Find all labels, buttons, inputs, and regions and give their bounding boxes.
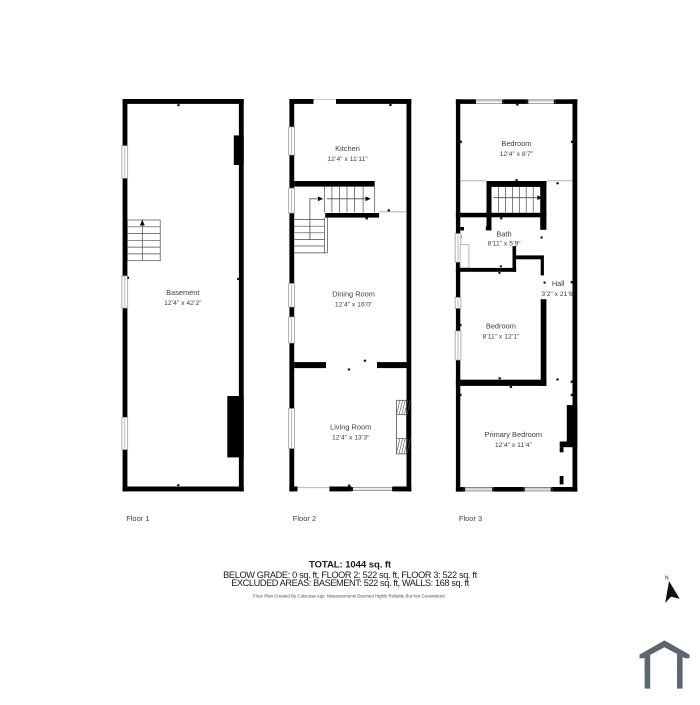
svg-text:8’11” x 12’1”: 8’11” x 12’1”: [482, 333, 520, 340]
svg-text:3’2” x 21’6”: 3’2” x 21’6”: [541, 291, 575, 298]
svg-text:Dining Room: Dining Room: [332, 290, 375, 299]
svg-text:12’4” x 8’7”: 12’4” x 8’7”: [500, 151, 534, 158]
svg-text:Basement: Basement: [166, 288, 199, 297]
svg-text:Floor Plan Created By Cubicasa: Floor Plan Created By Cubicasa App. Meas…: [253, 593, 445, 598]
svg-text:12’4” x 42’2”: 12’4” x 42’2”: [164, 300, 202, 307]
svg-text:Bedroom: Bedroom: [501, 139, 531, 148]
svg-text:Floor 1: Floor 1: [126, 514, 149, 523]
svg-text:12’4” x 13’3”: 12’4” x 13’3”: [332, 435, 370, 442]
svg-text:12’4” x 11’11”: 12’4” x 11’11”: [327, 156, 368, 163]
svg-text:Hall: Hall: [552, 279, 565, 288]
svg-text:8’11” x 5’9”: 8’11” x 5’9”: [487, 241, 521, 248]
svg-text:Bedroom: Bedroom: [486, 321, 516, 330]
svg-text:12’4” x 16’0”: 12’4” x 16’0”: [335, 302, 373, 309]
svg-text:Floor 2: Floor 2: [293, 514, 316, 523]
svg-text:12’4” x 11’4”: 12’4” x 11’4”: [495, 442, 533, 449]
svg-text:Kitchen: Kitchen: [335, 144, 360, 153]
svg-text:N: N: [665, 576, 669, 582]
svg-text:Living Room: Living Room: [330, 423, 371, 432]
svg-text:Floor 3: Floor 3: [459, 514, 482, 523]
svg-text:Bath: Bath: [496, 229, 511, 238]
svg-text:Primary Bedroom: Primary Bedroom: [485, 430, 543, 439]
svg-text:EXCLUDED AREAS: BASEMENT: 522: EXCLUDED AREAS: BASEMENT: 522 sq. ft, WA…: [231, 578, 469, 588]
